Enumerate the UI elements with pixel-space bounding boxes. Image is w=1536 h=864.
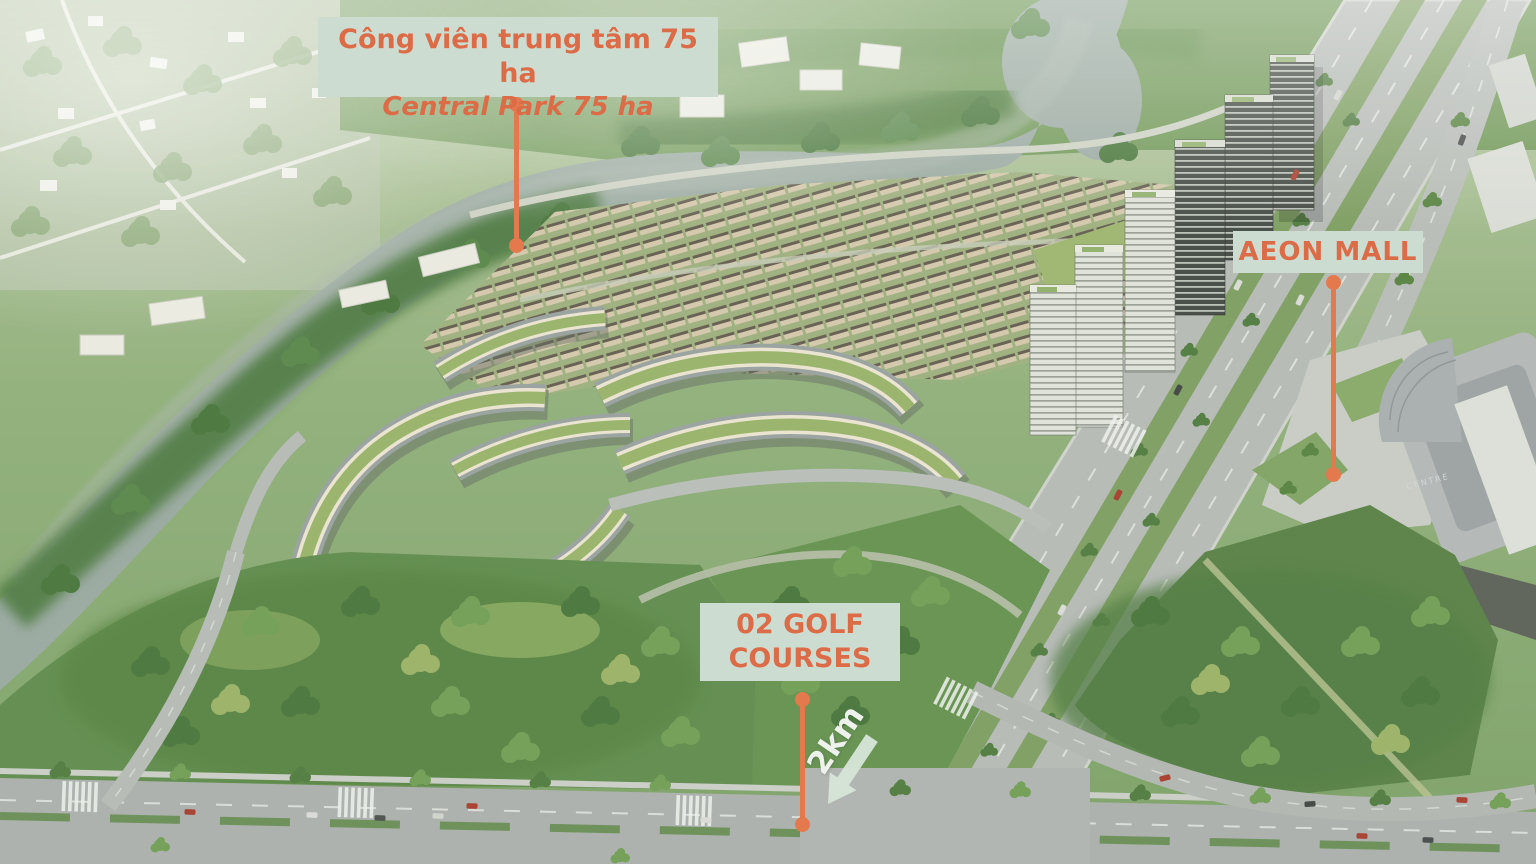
aeon-mall-label: AEON MALL [1233,231,1423,273]
golf-label-line1: 02 GOLF [700,608,900,642]
aeon-mall-pointer-line [1331,280,1336,477]
central-park-label-vietnamese: Công viên trung tâm 75 ha [318,23,718,91]
atmospheric-haze [0,0,1536,864]
central-park-label: Công viên trung tâm 75 ha Central Park 7… [318,17,718,97]
central-park-pointer-line [514,102,519,248]
central-park-label-english: Central Park 75 ha [318,91,718,123]
golf-label-line2: COURSES [700,642,900,676]
aerial-masterplan-render: Công viên trung tâm 75 ha Central Park 7… [0,0,1536,864]
scene-artwork [0,0,1536,864]
golf-courses-label: 02 GOLF COURSES [700,603,900,681]
